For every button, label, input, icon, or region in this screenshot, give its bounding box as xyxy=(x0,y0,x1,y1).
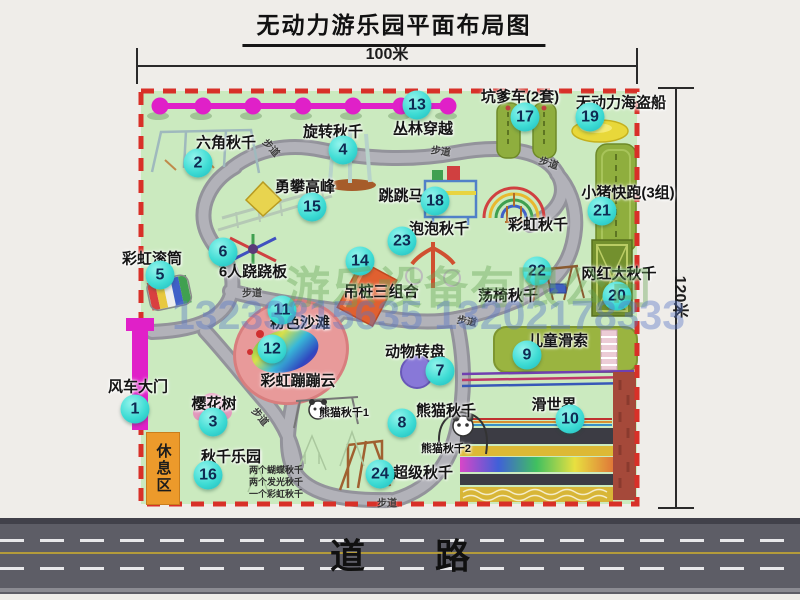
attraction-label-18: 跳跳马 xyxy=(378,185,423,206)
attraction-badge-3: 3 xyxy=(199,408,228,437)
attraction-badge-15: 15 xyxy=(298,193,327,222)
attraction-badge-10: 10 xyxy=(556,405,585,434)
attraction-badge-2: 2 xyxy=(184,149,213,178)
attraction-badge-17: 17 xyxy=(511,103,540,132)
path-label: 步道 xyxy=(430,141,452,159)
attraction-label-24: 超级秋千 xyxy=(393,462,453,483)
attraction-badge-18: 18 xyxy=(421,187,450,216)
rest-area-label: 休息区 xyxy=(153,443,174,494)
attraction-label-1: 风车大门 xyxy=(108,376,168,397)
park-layout-poster: 无动力游乐园平面布局图 100米 120米 休息区 风车大门1六角秋千2樱花树3… xyxy=(0,0,800,600)
attraction-badge-21: 21 xyxy=(588,197,617,226)
attraction-badge-4: 4 xyxy=(329,136,358,165)
rest-area-box: 休息区 xyxy=(146,432,180,505)
attraction-badge-6: 6 xyxy=(209,238,238,267)
road-edge xyxy=(0,518,800,524)
attraction-label-20: 网红大秋千 xyxy=(581,263,656,284)
path-label: 步道 xyxy=(377,495,397,510)
attraction-badge-13: 13 xyxy=(403,91,432,120)
attraction-badge-7: 7 xyxy=(426,357,455,386)
road-label: 道 路 xyxy=(330,528,470,579)
swing-park-note: 一个彩虹秋千 xyxy=(249,487,303,500)
attraction-badge-24: 24 xyxy=(366,460,395,489)
attraction-badge-5: 5 xyxy=(146,261,175,290)
attraction-badge-19: 19 xyxy=(576,103,605,132)
extra-label: 熊猫秋千1 xyxy=(319,404,369,420)
extra-label: 熊猫秋千2 xyxy=(421,440,471,456)
attraction-badge-11: 11 xyxy=(268,296,297,325)
road: 道 路 xyxy=(0,518,800,594)
path-label: 步道 xyxy=(242,285,262,300)
attraction-badge-20: 20 xyxy=(603,282,632,311)
road-edge xyxy=(0,588,800,592)
attraction-badge-22: 22 xyxy=(523,257,552,286)
attraction-badge-23: 23 xyxy=(388,227,417,256)
height-dimension-label: 120米 xyxy=(670,276,694,319)
attraction-label-8: 熊猫秋千 xyxy=(416,400,476,421)
attraction-badge-14: 14 xyxy=(346,247,375,276)
attraction-badge-8: 8 xyxy=(388,409,417,438)
attraction-label-13: 丛林穿越 xyxy=(393,118,453,139)
attraction-label-22: 荡椅秋千 xyxy=(478,285,538,306)
path-label: 步道 xyxy=(456,311,478,329)
attraction-badge-1: 1 xyxy=(121,395,150,424)
extra-label: 彩虹秋千 xyxy=(508,214,568,235)
attraction-label-12: 彩虹蹦蹦云 xyxy=(260,370,335,391)
attraction-badge-16: 16 xyxy=(194,461,223,490)
attraction-label-14: 吊桩三组合 xyxy=(343,281,418,302)
attraction-badge-9: 9 xyxy=(513,341,542,370)
attraction-label-23: 泡泡秋千 xyxy=(409,218,469,239)
attraction-badge-12: 12 xyxy=(258,335,287,364)
width-dimension-label: 100米 xyxy=(366,40,409,64)
